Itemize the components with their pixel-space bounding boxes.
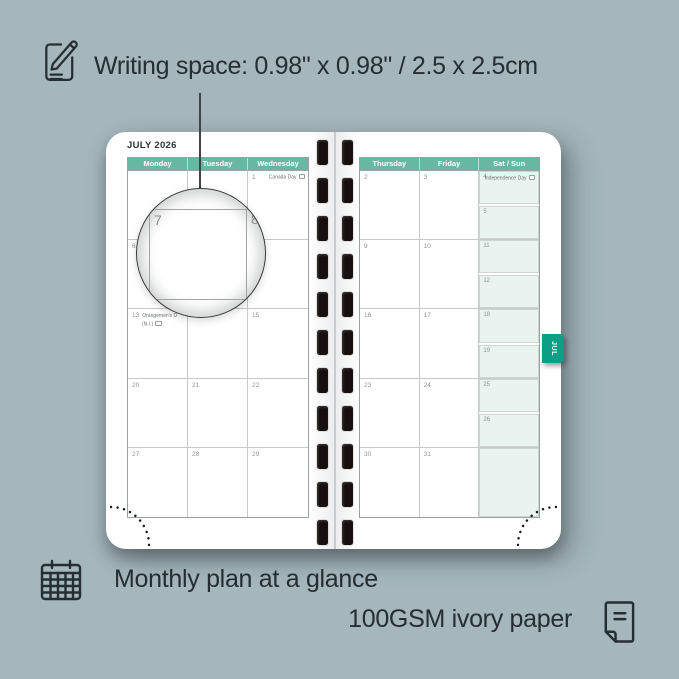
binding-hole bbox=[342, 406, 353, 431]
weekend-subcell: 12 bbox=[479, 275, 539, 308]
weekday-header: Tuesday bbox=[188, 158, 248, 171]
day-number: 15 bbox=[252, 312, 259, 319]
weekend-subcell: 26 bbox=[479, 414, 539, 447]
day-number: 24 bbox=[424, 382, 431, 389]
calendar-cell: 21 bbox=[188, 379, 248, 448]
writing-space-label: Writing space: 0.98" x 0.98" / 2.5 x 2.5… bbox=[94, 52, 538, 81]
binding-hole bbox=[317, 444, 328, 469]
magnified-grid-line bbox=[149, 299, 265, 300]
perforation-dots-left bbox=[110, 505, 152, 547]
weekend-cell: 1819 bbox=[479, 309, 539, 378]
binding-hole bbox=[317, 292, 328, 317]
weekday-header: Monday bbox=[128, 158, 188, 171]
callout-pointer-line bbox=[199, 93, 201, 190]
weekend-subcell: 4Independence Day bbox=[479, 171, 539, 204]
binding-hole bbox=[317, 330, 328, 355]
calendar-cell: 13Orangemen's D(N.I.) bbox=[128, 309, 188, 378]
holiday-label: (N.I.) bbox=[142, 321, 184, 328]
day-number: 11 bbox=[483, 243, 489, 249]
weekend-subcell: 25 bbox=[479, 379, 539, 412]
monthly-glance-label: Monthly plan at a glance bbox=[114, 565, 378, 594]
weekend-cell: 4Independence Day5 bbox=[479, 171, 539, 240]
calendar-right-page: ThursdayFridaySat / Sun234Independence D… bbox=[359, 157, 540, 518]
flag-icon bbox=[155, 321, 162, 326]
binding-hole bbox=[342, 178, 353, 203]
flag-icon bbox=[529, 175, 536, 180]
page-spine-gap bbox=[334, 132, 336, 549]
day-number: 23 bbox=[364, 382, 371, 389]
calendar-cell: 31 bbox=[420, 448, 480, 517]
weekday-header: Thursday bbox=[360, 158, 420, 171]
day-number: 9 bbox=[364, 243, 368, 250]
month-tab-jul: JUL bbox=[542, 334, 564, 363]
binding-hole bbox=[342, 140, 353, 165]
day-number: 16 bbox=[364, 312, 371, 319]
day-number: 20 bbox=[132, 382, 139, 389]
writing-space-callout: Writing space: 0.98" x 0.98" / 2.5 x 2.5… bbox=[42, 36, 538, 84]
day-number: 28 bbox=[192, 451, 199, 458]
binding-hole bbox=[317, 254, 328, 279]
weekend-cell: 2526 bbox=[479, 379, 539, 448]
day-number: 26 bbox=[483, 417, 490, 423]
magnified-grid-line bbox=[149, 209, 150, 299]
binding-hole bbox=[317, 482, 328, 507]
day-number: 10 bbox=[424, 243, 431, 250]
binding-hole bbox=[317, 216, 328, 241]
binding-hole bbox=[342, 216, 353, 241]
day-number: 3 bbox=[424, 174, 428, 181]
holiday-label: Orangemen's D bbox=[142, 313, 177, 319]
binding-hole bbox=[317, 406, 328, 431]
binding-hole bbox=[342, 520, 353, 545]
calendar-cell: 15 bbox=[248, 309, 308, 378]
day-number: 31 bbox=[424, 451, 431, 458]
day-number: 21 bbox=[192, 382, 199, 389]
magnified-day-7: 7 bbox=[154, 212, 162, 228]
weekend-subcell: 19 bbox=[479, 345, 539, 378]
weekday-header: Wednesday bbox=[248, 158, 308, 171]
day-number: 2 bbox=[364, 174, 368, 181]
binding-hole bbox=[317, 178, 328, 203]
binding-hole bbox=[342, 482, 353, 507]
weekend-subcell: 18 bbox=[479, 309, 539, 342]
paper-sheet-icon bbox=[598, 598, 637, 648]
weekend-subcell: 11 bbox=[479, 240, 539, 273]
day-number: 22 bbox=[252, 382, 259, 389]
day-number: 12 bbox=[483, 278, 490, 284]
calendar-cell: 28 bbox=[188, 448, 248, 517]
calendar-cell: 10 bbox=[420, 240, 480, 309]
binding-hole bbox=[342, 330, 353, 355]
month-tab-label: JUL bbox=[549, 341, 556, 356]
calendar-cell: 20 bbox=[128, 379, 188, 448]
calendar-grid-icon bbox=[38, 557, 84, 603]
day-number: 13 bbox=[132, 312, 139, 319]
day-number: 17 bbox=[424, 312, 431, 319]
calendar-cell: 3 bbox=[420, 171, 480, 240]
calendar-cell: 23 bbox=[360, 379, 420, 448]
binding-hole bbox=[342, 368, 353, 393]
binding-hole bbox=[342, 254, 353, 279]
calendar-cell: 29 bbox=[248, 448, 308, 517]
calendar-cell: 30 bbox=[360, 448, 420, 517]
magnified-grid-line bbox=[246, 209, 247, 299]
day-number: 18 bbox=[483, 312, 490, 318]
perforation-dots-right bbox=[515, 505, 557, 547]
day-number: 25 bbox=[483, 382, 490, 388]
calendar-cell: 2 bbox=[360, 171, 420, 240]
calendar-cell: 9 bbox=[360, 240, 420, 309]
day-number: 29 bbox=[252, 451, 259, 458]
month-title: JULY 2026 bbox=[127, 140, 177, 151]
notepad-pencil-icon bbox=[42, 36, 80, 84]
calendar-cell: 16 bbox=[360, 309, 420, 378]
binding-hole bbox=[342, 292, 353, 317]
monthly-glance-callout: Monthly plan at a glance bbox=[38, 557, 378, 603]
day-number: 19 bbox=[483, 348, 490, 354]
weekend-subcell: 5 bbox=[479, 206, 539, 239]
day-number: 27 bbox=[132, 451, 139, 458]
binding-hole bbox=[317, 520, 328, 545]
holiday-label: Canada Day bbox=[269, 174, 305, 181]
day-number: 5 bbox=[483, 209, 486, 215]
weekday-header: Sat / Sun bbox=[479, 158, 539, 171]
binding-hole bbox=[317, 368, 328, 393]
binding-hole bbox=[342, 444, 353, 469]
weekend-cell: 1112 bbox=[479, 240, 539, 309]
flag-icon bbox=[299, 174, 306, 179]
calendar-cell: 24 bbox=[420, 379, 480, 448]
magnifier-circle: 7 8 bbox=[136, 188, 266, 318]
calendar-cell: 17 bbox=[420, 309, 480, 378]
holiday-label: Independence Day bbox=[485, 175, 535, 182]
calendar-cell: 22 bbox=[248, 379, 308, 448]
paper-callout: 100GSM ivory paper bbox=[348, 598, 637, 648]
paper-label: 100GSM ivory paper bbox=[348, 605, 572, 634]
magnified-day-8: 8 bbox=[251, 211, 259, 227]
calendar-cell: 14 bbox=[188, 309, 248, 378]
binding-hole bbox=[317, 140, 328, 165]
weekday-header: Friday bbox=[420, 158, 480, 171]
day-number: 30 bbox=[364, 451, 371, 458]
day-number: 1 bbox=[252, 174, 256, 181]
